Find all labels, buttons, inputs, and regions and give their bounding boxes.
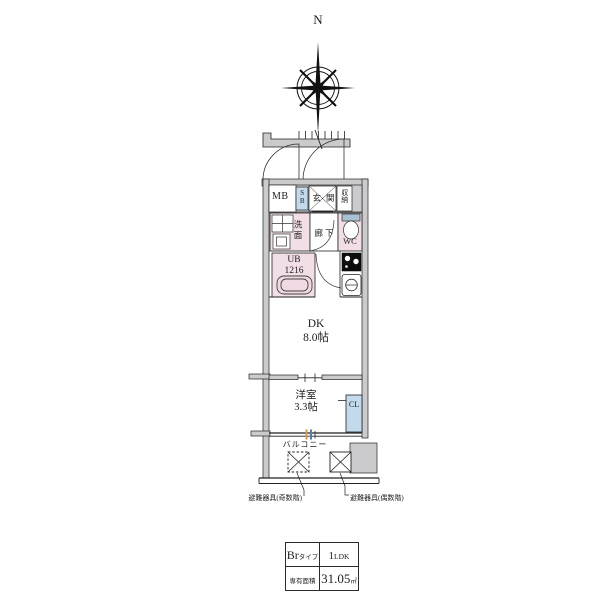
sb-label: SB <box>298 189 306 205</box>
hallway-label: 廊下 <box>314 228 335 238</box>
area-value: 31.05 <box>321 571 350 586</box>
unit-bath-label: UB 1216 <box>285 255 304 277</box>
wc-label: WC <box>343 236 357 246</box>
evac-even-label: 避難器具(偶数階) <box>350 494 404 502</box>
genkan-label: 玄関 <box>312 193 339 203</box>
washroom-label: 洗面 <box>293 220 303 241</box>
area-label-cell: 専有面積 <box>286 567 320 591</box>
floorplan-linework <box>0 0 600 600</box>
layout-suffix: LDK <box>334 552 349 561</box>
compass-rose-icon <box>281 42 355 134</box>
floorplan-page: N MB SB 玄関 収納 洗面 廊下 WC UB 1216 DK 8.0帖 洋… <box>0 0 600 600</box>
dk-label: DK 8.0帖 <box>303 318 329 345</box>
partition-opening <box>298 374 322 383</box>
western-room-label: 洋室 3.3帖 <box>294 390 318 415</box>
spec-table: Brタイプ 1LDK 専有面積 31.05㎡ <box>285 542 359 591</box>
bathtub-icon <box>277 276 312 294</box>
area-label: 専有面積 <box>290 578 316 585</box>
unit-type-cell: Brタイプ <box>286 543 320 567</box>
stove-icon <box>342 253 361 271</box>
evac-odd-label: 避難器具(奇数階) <box>220 494 302 502</box>
leader-lines <box>297 473 349 496</box>
area-value-cell: 31.05㎡ <box>320 567 359 591</box>
evacuation-hatch-icon <box>288 452 351 472</box>
unit-type-name: Br <box>287 548 299 562</box>
compass-north-label: N <box>313 12 322 27</box>
mb-label: MB <box>272 191 289 203</box>
balcony-edge <box>259 478 379 484</box>
unit-type-suffix: タイプ <box>299 554 319 561</box>
area-unit: ㎡ <box>350 578 357 585</box>
storage-label: 収納 <box>341 189 349 203</box>
closet-label: CL <box>349 400 359 409</box>
layout-cell: 1LDK <box>320 543 359 567</box>
sink-icon <box>342 275 361 296</box>
table-row: 専有面積 31.05㎡ <box>286 567 359 591</box>
washer-icon <box>272 215 293 249</box>
balcony-label: バルコニー <box>283 440 328 449</box>
table-row: Brタイプ 1LDK <box>286 543 359 567</box>
